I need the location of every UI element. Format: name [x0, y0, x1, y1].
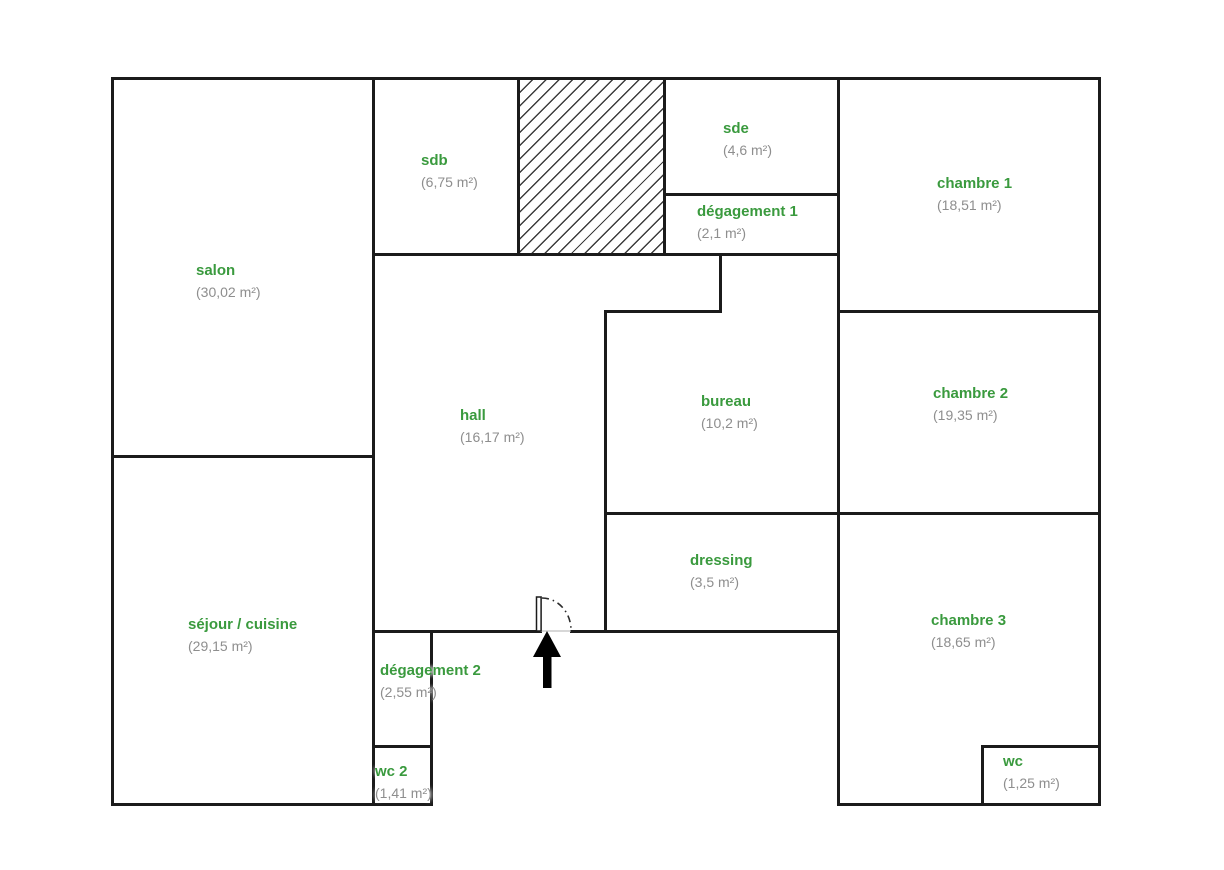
room-label-degagement-1: dégagement 1 (2,1 m²)	[697, 203, 798, 242]
room-area: (3,5 m²)	[690, 573, 753, 591]
wall-segment	[663, 77, 666, 256]
room-label-chambre-1: chambre 1 (18,51 m²)	[937, 175, 1012, 214]
wall-segment	[372, 745, 433, 748]
entrance-arrow-icon	[525, 625, 570, 695]
room-name: bureau	[701, 393, 758, 411]
room-label-chambre-3: chambre 3 (18,65 m²)	[931, 612, 1006, 651]
wall-segment	[111, 77, 114, 806]
room-area: (1,41 m²)	[375, 784, 432, 802]
room-label-sejour-cuisine: séjour / cuisine (29,15 m²)	[188, 616, 297, 655]
room-name: séjour / cuisine	[188, 616, 297, 634]
room-name: wc 2	[375, 763, 432, 781]
room-label-sdb: sdb (6,75 m²)	[421, 152, 478, 191]
room-label-bureau: bureau (10,2 m²)	[701, 393, 758, 432]
room-label-wc: wc (1,25 m²)	[1003, 753, 1060, 792]
room-area: (10,2 m²)	[701, 414, 758, 432]
room-area: (16,17 m²)	[460, 428, 525, 446]
room-label-hall: hall (16,17 m²)	[460, 407, 525, 446]
room-name: chambre 3	[931, 612, 1006, 630]
room-area: (2,55 m²)	[380, 683, 481, 701]
floor-plan: salon (30,02 m²) sdb (6,75 m²) sde (4,6 …	[0, 0, 1224, 870]
room-name: hall	[460, 407, 525, 425]
room-name: wc	[1003, 753, 1060, 771]
wall-segment	[111, 77, 1101, 80]
room-area: (30,02 m²)	[196, 283, 261, 301]
wall-segment	[838, 803, 1101, 806]
wall-segment	[981, 745, 1101, 748]
room-name: dégagement 1	[697, 203, 798, 221]
room-label-dressing: dressing (3,5 m²)	[690, 552, 753, 591]
wall-segment	[981, 745, 984, 806]
room-label-chambre-2: chambre 2 (19,35 m²)	[933, 385, 1008, 424]
room-area: (18,51 m²)	[937, 196, 1012, 214]
wall-segment	[837, 77, 840, 806]
room-area: (6,75 m²)	[421, 173, 478, 191]
wall-segment	[719, 253, 722, 313]
room-area: (1,25 m²)	[1003, 774, 1060, 792]
room-label-wc-2: wc 2 (1,41 m²)	[375, 763, 432, 802]
room-label-degagement-2: dégagement 2 (2,55 m²)	[380, 662, 481, 701]
room-name: dressing	[690, 552, 753, 570]
wall-segment	[372, 253, 840, 256]
wall-segment	[372, 77, 375, 806]
wall-segment	[517, 77, 520, 256]
room-name: chambre 1	[937, 175, 1012, 193]
room-name: sdb	[421, 152, 478, 170]
wall-segment	[604, 310, 722, 313]
room-name: dégagement 2	[380, 662, 481, 680]
room-area: (18,65 m²)	[931, 633, 1006, 651]
room-label-salon: salon (30,02 m²)	[196, 262, 261, 301]
wall-segment	[570, 630, 840, 633]
room-area: (4,6 m²)	[723, 141, 772, 159]
wall-segment	[837, 310, 1101, 313]
room-name: chambre 2	[933, 385, 1008, 403]
room-name: salon	[196, 262, 261, 280]
wall-segment	[111, 455, 375, 458]
wall-segment	[663, 193, 840, 196]
wall-segment	[111, 803, 433, 806]
room-name: sde	[723, 120, 772, 138]
wall-segment	[1098, 77, 1101, 806]
room-area: (29,15 m²)	[188, 637, 297, 655]
room-area: (19,35 m²)	[933, 406, 1008, 424]
room-area: (2,1 m²)	[697, 224, 798, 242]
wall-segment	[604, 512, 1101, 515]
hatched-shaft-area	[520, 80, 663, 253]
room-label-sde: sde (4,6 m²)	[723, 120, 772, 159]
